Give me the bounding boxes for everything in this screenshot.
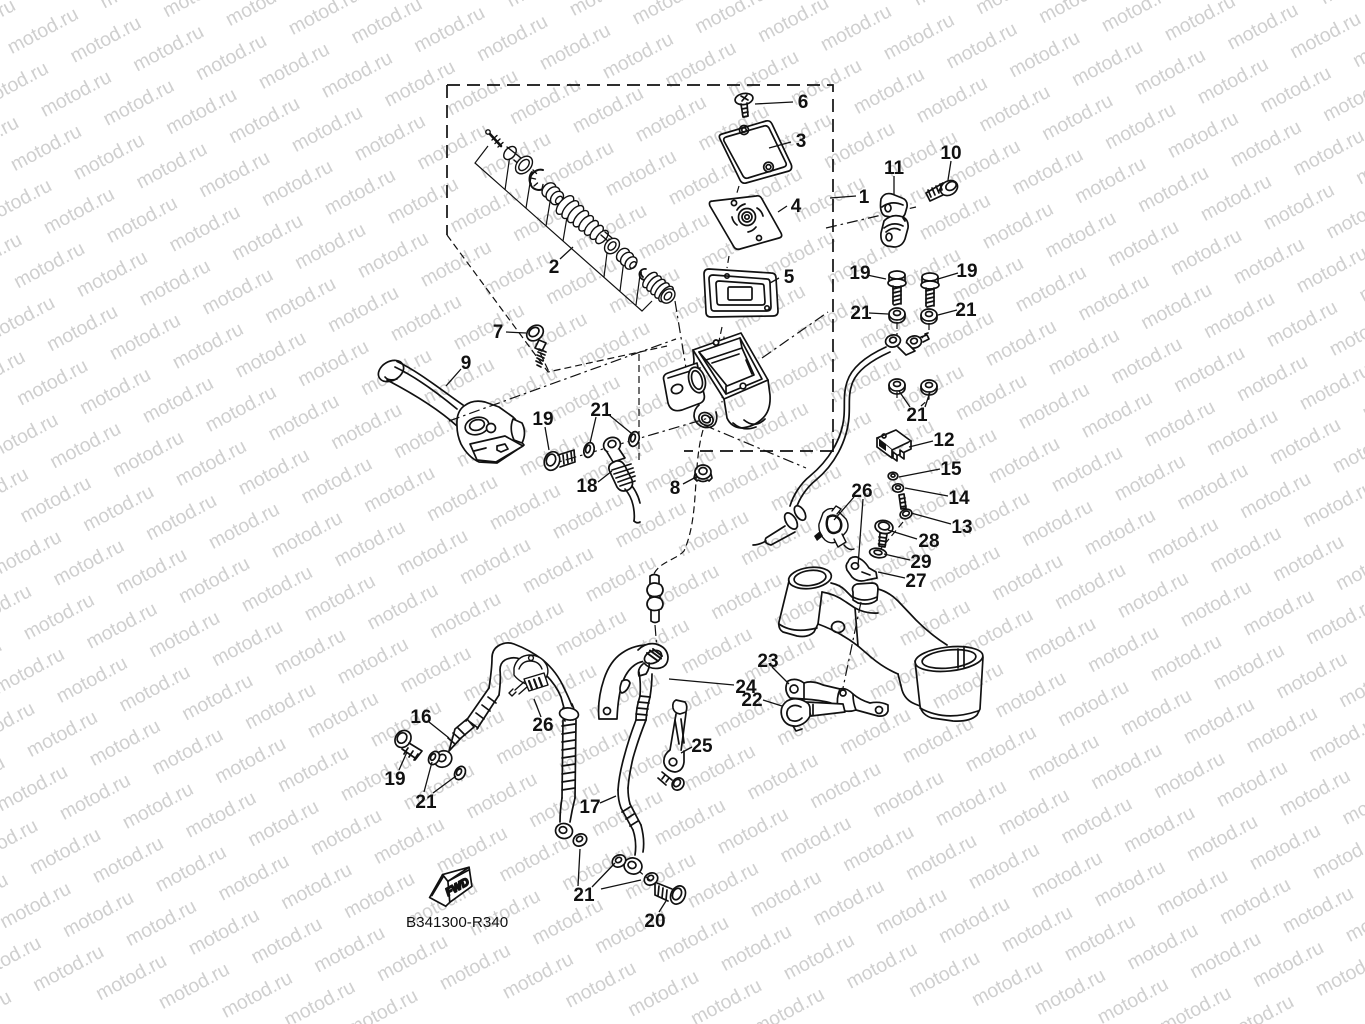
svg-text:10: 10 — [940, 143, 961, 164]
svg-text:6: 6 — [798, 92, 809, 113]
svg-text:11: 11 — [884, 158, 905, 179]
svg-text:13: 13 — [951, 517, 972, 538]
svg-text:21: 21 — [906, 405, 928, 426]
svg-text:19: 19 — [384, 769, 405, 790]
svg-text:28: 28 — [918, 531, 939, 552]
svg-text:16: 16 — [410, 707, 431, 728]
svg-text:21: 21 — [573, 885, 595, 906]
svg-text:20: 20 — [644, 911, 665, 932]
svg-text:19: 19 — [849, 263, 870, 284]
svg-text:2: 2 — [549, 257, 560, 278]
svg-text:17: 17 — [579, 797, 600, 818]
svg-text:29: 29 — [910, 552, 931, 573]
svg-text:9: 9 — [461, 353, 472, 374]
svg-text:24: 24 — [735, 677, 757, 698]
svg-text:21: 21 — [415, 792, 437, 813]
svg-text:14: 14 — [948, 488, 970, 509]
svg-text:18: 18 — [576, 476, 597, 497]
svg-text:23: 23 — [757, 651, 778, 672]
svg-text:25: 25 — [691, 736, 713, 757]
svg-text:B341300-R340: B341300-R340 — [406, 914, 508, 931]
svg-text:26: 26 — [851, 481, 872, 502]
svg-text:21: 21 — [850, 303, 872, 324]
svg-text:21: 21 — [955, 300, 977, 321]
svg-text:5: 5 — [784, 267, 795, 288]
svg-text:26: 26 — [532, 715, 553, 736]
svg-text:1: 1 — [859, 187, 870, 208]
svg-text:21: 21 — [590, 400, 612, 421]
svg-text:15: 15 — [940, 459, 962, 480]
svg-text:12: 12 — [933, 430, 954, 451]
svg-text:19: 19 — [532, 409, 553, 430]
svg-text:4: 4 — [791, 196, 802, 217]
svg-text:8: 8 — [670, 478, 681, 499]
svg-text:27: 27 — [905, 571, 926, 592]
svg-text:7: 7 — [493, 322, 504, 343]
svg-text:3: 3 — [796, 131, 807, 152]
svg-text:19: 19 — [956, 261, 977, 282]
